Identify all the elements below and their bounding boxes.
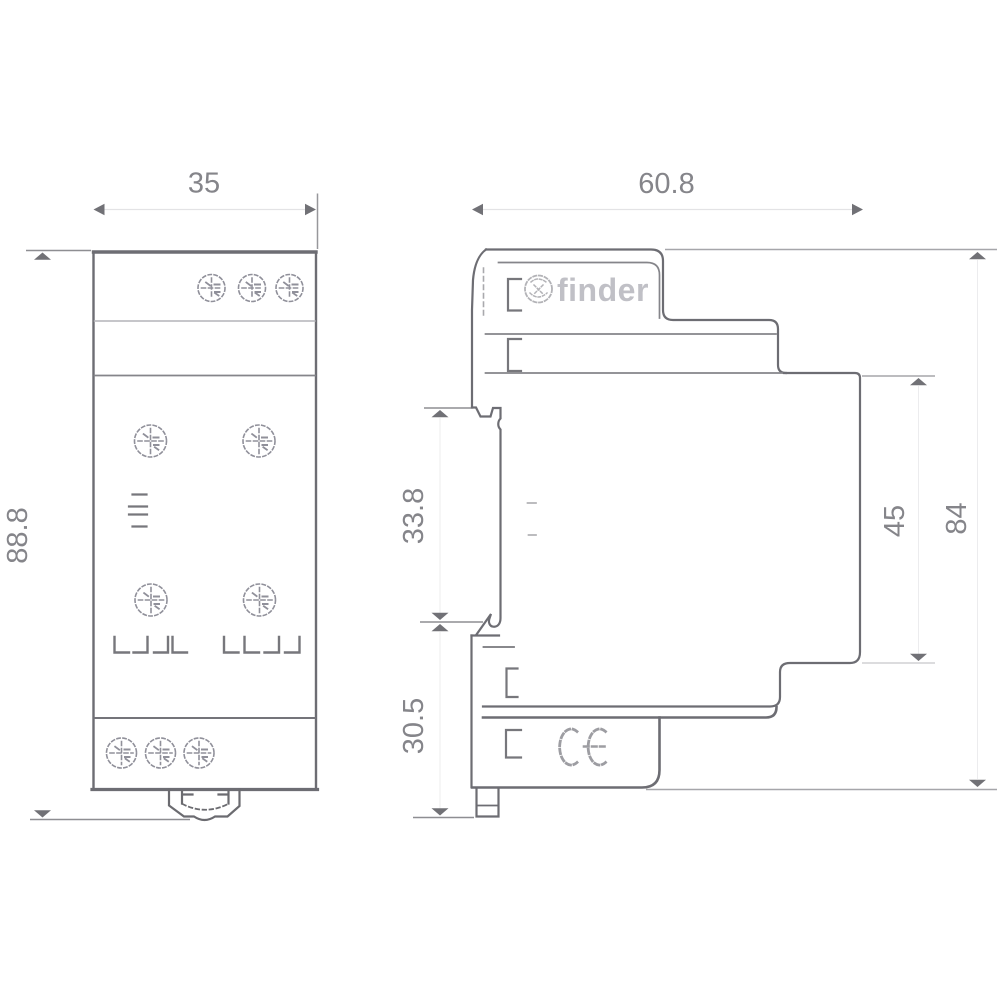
svg-text:finder: finder	[557, 272, 649, 308]
svg-text:30.5: 30.5	[398, 698, 430, 754]
svg-text:88.8: 88.8	[2, 507, 34, 563]
svg-text:33.8: 33.8	[398, 488, 430, 544]
svg-text:84: 84	[941, 502, 973, 534]
svg-text:45: 45	[879, 505, 911, 537]
svg-text:60.8: 60.8	[638, 168, 694, 200]
svg-text:35: 35	[188, 168, 220, 200]
